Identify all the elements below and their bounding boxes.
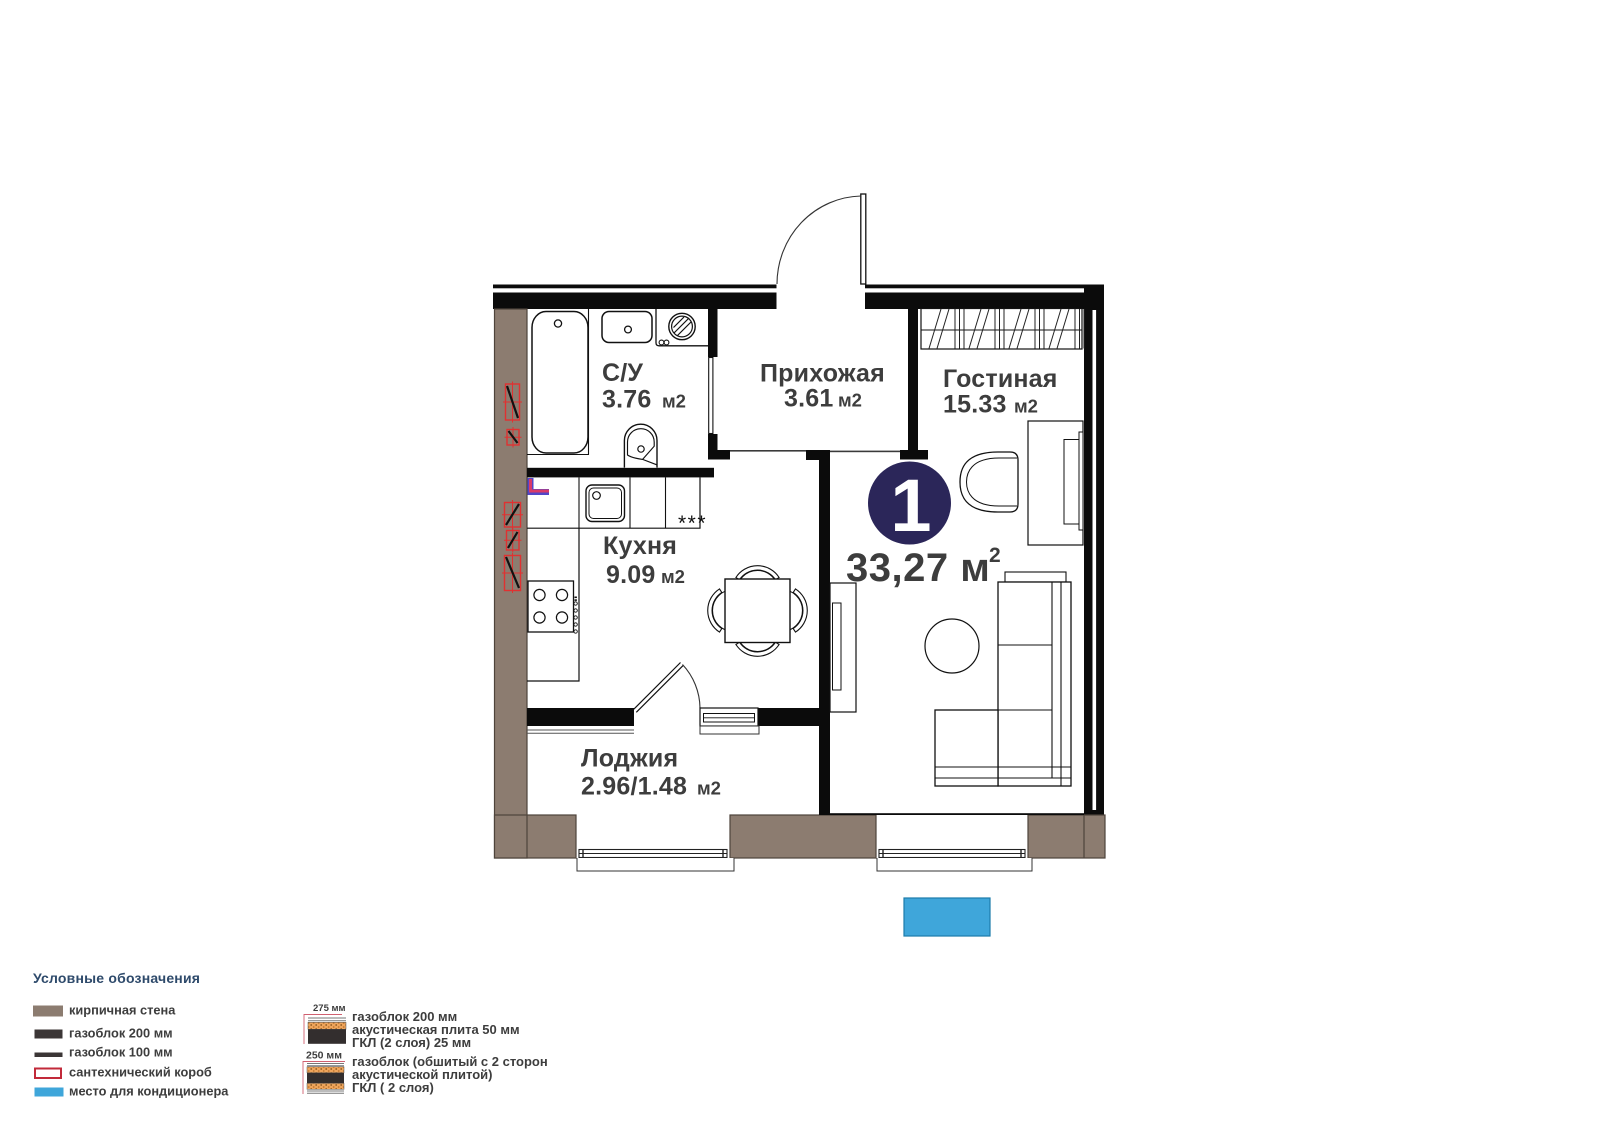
svg-text:33,27 м: 33,27 м	[846, 546, 990, 590]
svg-text:м2: м2	[661, 566, 685, 587]
svg-text:275 мм: 275 мм	[313, 1003, 346, 1014]
svg-text:кирпичная стена: кирпичная стена	[69, 1003, 176, 1018]
svg-text:м2: м2	[697, 778, 721, 799]
svg-text:3.61: 3.61	[784, 385, 833, 413]
svg-text:Кухня: Кухня	[603, 532, 677, 560]
svg-text:15.33: 15.33	[943, 391, 1007, 419]
svg-text:1: 1	[890, 464, 931, 547]
svg-text:Лоджия: Лоджия	[581, 745, 678, 773]
svg-text:2: 2	[989, 544, 1001, 567]
svg-text:Гостиная: Гостиная	[943, 365, 1058, 393]
svg-text:***: ***	[678, 512, 707, 535]
svg-text:Прихожая: Прихожая	[760, 360, 885, 388]
svg-text:сантехнический короб: сантехнический короб	[69, 1065, 212, 1080]
svg-text:м2: м2	[1014, 396, 1038, 417]
svg-text:250 мм: 250 мм	[306, 1050, 342, 1062]
svg-text:ГКЛ ( 2 слоя): ГКЛ ( 2 слоя)	[352, 1080, 434, 1095]
svg-text:С/У: С/У	[602, 359, 643, 387]
svg-text:м2: м2	[838, 390, 862, 411]
svg-text:9.09: 9.09	[606, 561, 655, 589]
svg-text:м2: м2	[662, 391, 686, 412]
svg-text:газоблок 200 мм: газоблок 200 мм	[69, 1026, 173, 1041]
svg-text:газоблок 100 мм: газоблок 100 мм	[69, 1045, 173, 1060]
svg-text:3.76: 3.76	[602, 386, 651, 414]
svg-text:Условные обозначения: Условные обозначения	[33, 970, 200, 986]
svg-text:2.96/1.48: 2.96/1.48	[581, 773, 687, 801]
svg-text:ГКЛ (2 слоя) 25 мм: ГКЛ (2 слоя) 25 мм	[352, 1035, 471, 1050]
svg-text:место для кондиционера: место для кондиционера	[69, 1084, 229, 1099]
